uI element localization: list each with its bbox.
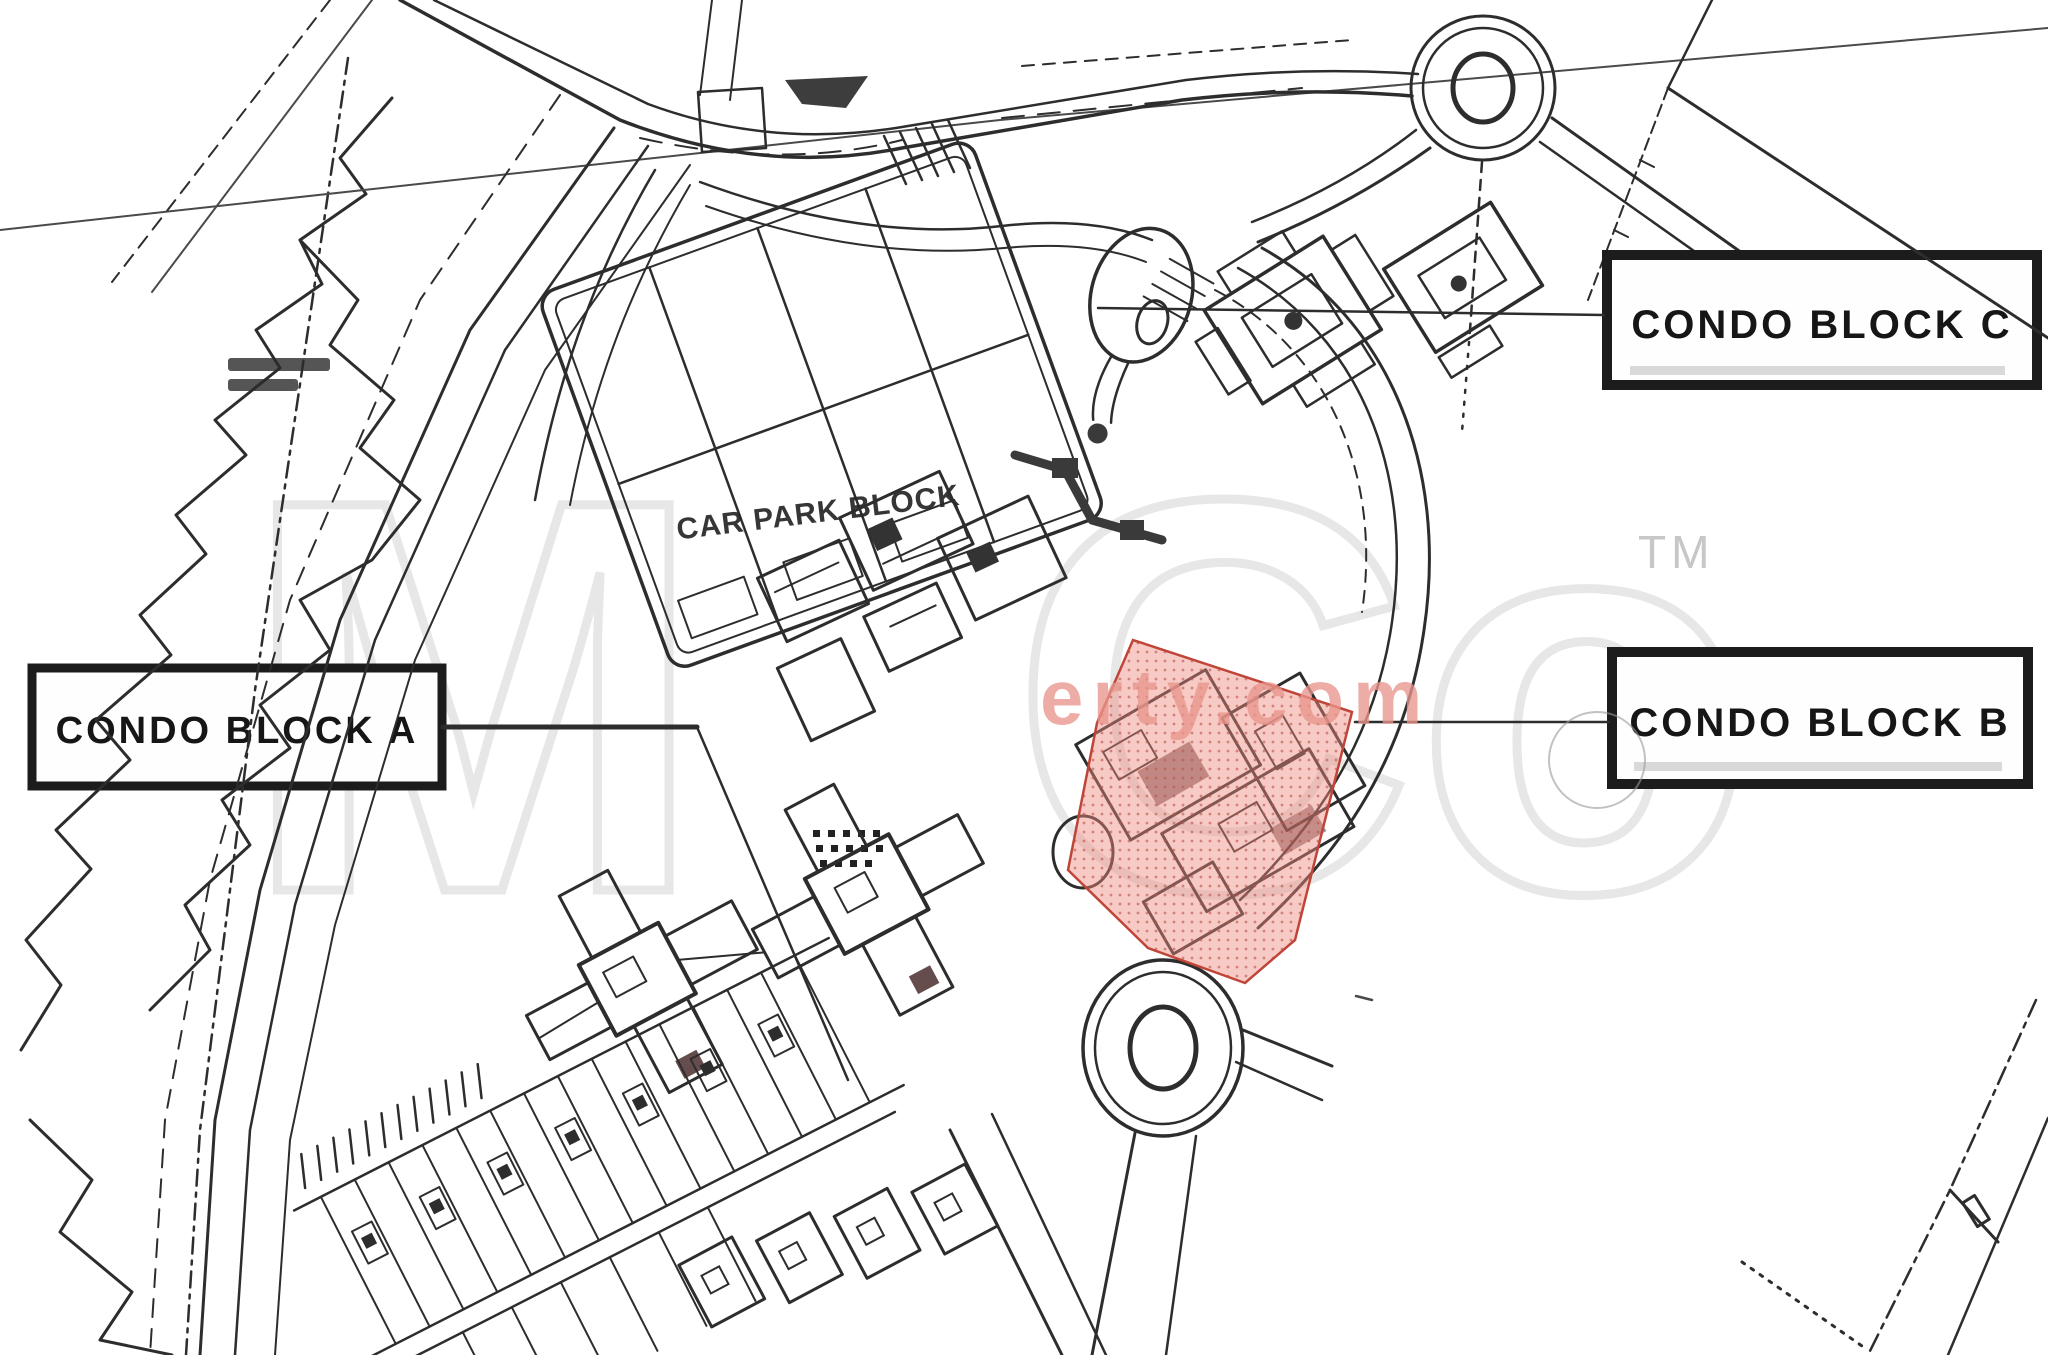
condo-block-a-label: CONDO BLOCK A (56, 710, 419, 752)
condo-block-b-label: CONDO BLOCK B (1629, 701, 2010, 745)
label-box-condo-b: CONDO BLOCK B (1612, 652, 2028, 784)
terrace-blocks (679, 1124, 998, 1355)
watermark-pink-text: erty.com (1040, 653, 1431, 741)
road-island-dark (785, 76, 868, 108)
condo-block-c-label: CONDO BLOCK C (1631, 303, 2012, 347)
car-park-block-label: CAR PARK BLOCK (675, 479, 962, 547)
site-plan-drawing: M Co CONDO BLOCK A (0, 0, 2048, 1355)
parking-unit-symbols (352, 1014, 794, 1263)
site-plan-page: M Co CONDO BLOCK A (0, 0, 2048, 1355)
boundary-bottom-right (1356, 996, 2048, 1355)
watermark-tm: TM (1638, 526, 1714, 578)
watermark-gray-letters: M Co (240, 383, 1756, 1009)
main-road-top (400, 0, 1418, 157)
crosswalk-hatch (884, 120, 970, 184)
survey-line (0, 28, 2048, 230)
leader-condo-a-diagonal (697, 727, 848, 1080)
label-box-condo-c: CONDO BLOCK C (1607, 255, 2037, 385)
label-box-condo-a: CONDO BLOCK A (32, 668, 442, 786)
dot-grid (813, 830, 883, 867)
